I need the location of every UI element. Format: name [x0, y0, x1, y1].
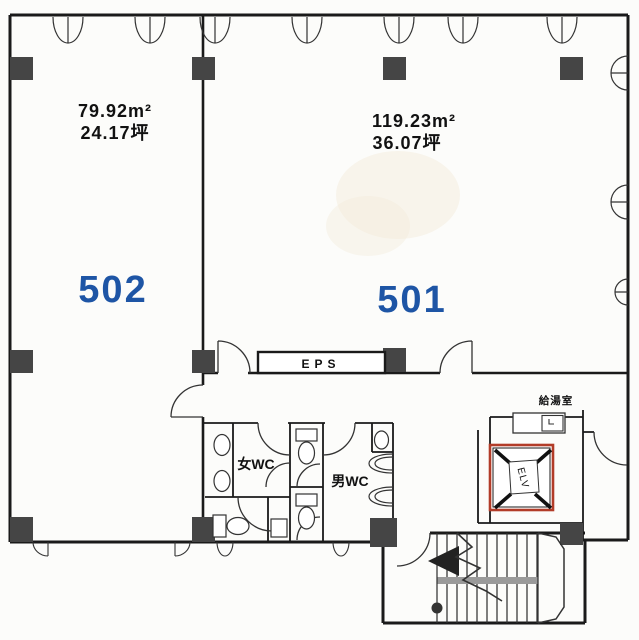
stair-start-dot [432, 603, 443, 614]
urinal [369, 454, 393, 506]
eps-shaft: EPS [258, 352, 385, 373]
stair-mid-rail [437, 577, 538, 584]
unit-502-area-tsubo: 24.17坪 [80, 123, 149, 143]
toilet-bowl [227, 518, 249, 535]
elevator: ELV [490, 445, 553, 510]
women-wc-label: 女WC [237, 456, 274, 472]
faint-stamp-blob [326, 151, 460, 256]
unit-502-info: 79.92m² 24.17坪 502 [78, 101, 152, 311]
unit-501-area-tsubo: 36.07坪 [372, 133, 441, 153]
basin [214, 471, 230, 492]
toilet-tank [296, 494, 317, 506]
window-arcs-top [53, 17, 577, 43]
staircase [428, 533, 564, 623]
kitchenette-label: 給湯室 [539, 394, 574, 407]
eps-label: EPS [301, 357, 340, 371]
kitchen-sink-bowl [542, 416, 563, 432]
kitchenette: 給湯室 [513, 394, 573, 433]
unit-501-area-m2: 119.23m² [372, 111, 456, 131]
unit-501-number: 501 [377, 279, 446, 321]
toilet-tank [213, 515, 226, 537]
stair-direction-arrow [428, 546, 459, 576]
stair-turn-cap [538, 533, 564, 623]
slop-sink [271, 519, 287, 537]
unit-502-area-m2: 79.92m² [78, 101, 152, 121]
men-wc-label: 男WC [331, 473, 368, 489]
stair-break-zigzag [456, 533, 502, 601]
toilet-bowl [299, 442, 315, 464]
window-arcs-bottom [33, 542, 349, 556]
basin [214, 435, 230, 456]
toilet-tank [296, 429, 317, 441]
floor-plan-canvas: EPS 給湯室 ELV 女WC 男WC [0, 0, 639, 640]
window-arcs-right [611, 56, 628, 305]
basin [375, 431, 389, 449]
unit-502-number: 502 [78, 269, 147, 311]
floor-plan: EPS 給湯室 ELV 女WC 男WC [0, 0, 639, 640]
toilet-bowl [299, 507, 315, 529]
